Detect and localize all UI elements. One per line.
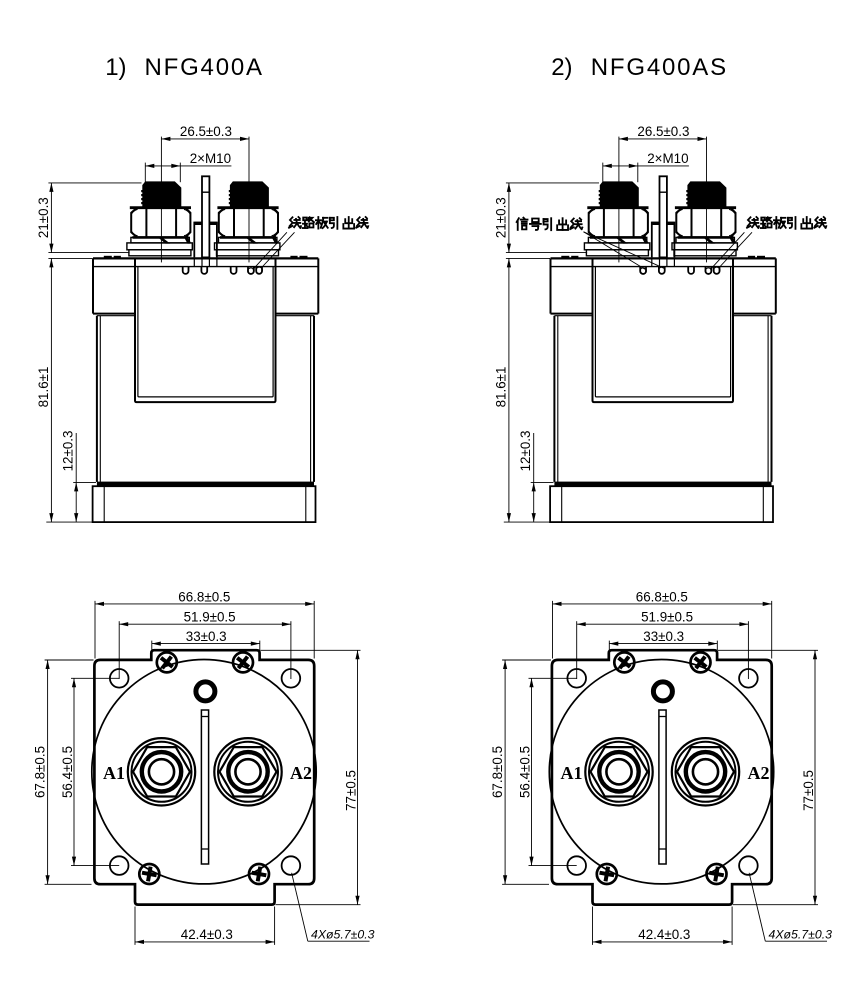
svg-text:4Xø5.7±0.3: 4Xø5.7±0.3: [769, 927, 833, 941]
svg-text:A2: A2: [290, 763, 312, 783]
svg-text:A1: A1: [561, 763, 583, 783]
svg-text:NFG400AS: NFG400AS: [591, 54, 728, 81]
svg-text:51.9±0.5: 51.9±0.5: [184, 609, 236, 624]
svg-text:51.9±0.5: 51.9±0.5: [641, 609, 693, 624]
svg-text:42.4±0.3: 42.4±0.3: [638, 927, 690, 942]
svg-text:NFG400A: NFG400A: [145, 54, 264, 81]
svg-text:2×M10: 2×M10: [190, 151, 231, 166]
svg-text:26.5±0.3: 26.5±0.3: [180, 124, 232, 139]
svg-text:A2: A2: [748, 763, 770, 783]
svg-text:26.5±0.3: 26.5±0.3: [637, 124, 689, 139]
svg-text:77±0.5: 77±0.5: [801, 770, 816, 811]
svg-text:42.4±0.3: 42.4±0.3: [181, 927, 233, 942]
svg-text:A1: A1: [103, 763, 125, 783]
svg-text:66.8±0.5: 66.8±0.5: [178, 589, 230, 604]
svg-text:12±0.3: 12±0.3: [518, 431, 533, 472]
svg-text:56.4±0.5: 56.4±0.5: [60, 746, 75, 798]
svg-text:12±0.3: 12±0.3: [61, 431, 76, 472]
svg-text:2×M10: 2×M10: [647, 151, 688, 166]
svg-text:33±0.3: 33±0.3: [643, 629, 684, 644]
svg-text:67.8±0.5: 67.8±0.5: [32, 746, 47, 798]
svg-text:2): 2): [551, 54, 572, 81]
svg-text:33±0.3: 33±0.3: [186, 629, 227, 644]
svg-text:1): 1): [105, 54, 126, 81]
svg-text:56.4±0.5: 56.4±0.5: [518, 746, 533, 798]
svg-text:66.8±0.5: 66.8±0.5: [636, 589, 688, 604]
svg-text:77±0.5: 77±0.5: [343, 770, 358, 811]
svg-text:81.6±1: 81.6±1: [493, 367, 508, 408]
svg-text:81.6±1: 81.6±1: [36, 367, 51, 408]
svg-text:4Xø5.7±0.3: 4Xø5.7±0.3: [311, 927, 375, 941]
svg-text:21±0.3: 21±0.3: [493, 197, 508, 238]
svg-text:67.8±0.5: 67.8±0.5: [490, 746, 505, 798]
svg-text:21±0.3: 21±0.3: [36, 197, 51, 238]
